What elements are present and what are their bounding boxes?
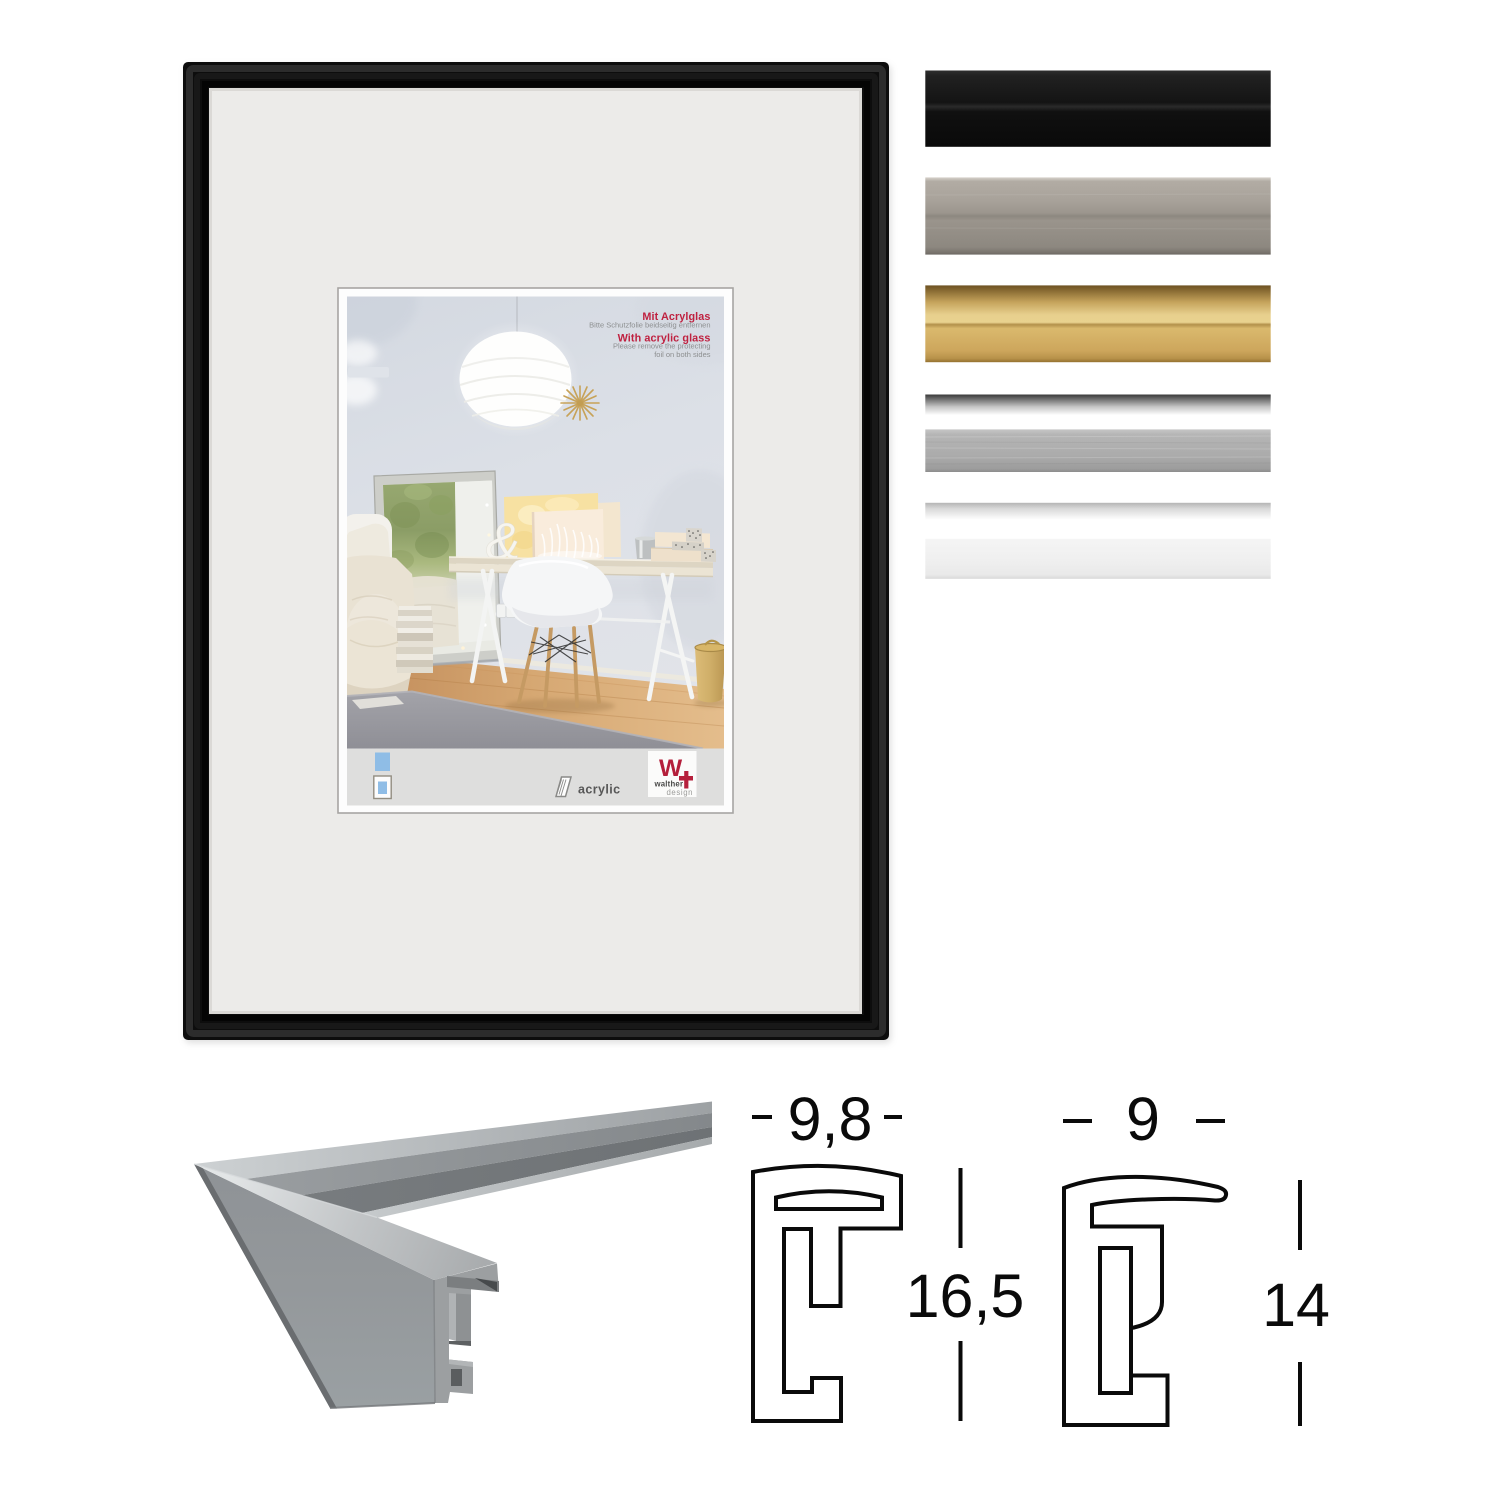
- svg-text:14: 14: [1262, 1271, 1330, 1339]
- svg-text:design: design: [667, 788, 694, 797]
- svg-text:Bitte Schutzfolie beidseitig e: Bitte Schutzfolie beidseitig entfernen: [589, 321, 710, 330]
- svg-text:9,8: 9,8: [788, 1085, 873, 1153]
- svg-text:acrylic: acrylic: [578, 783, 620, 797]
- svg-text:foil on both sides: foil on both sides: [654, 350, 711, 359]
- svg-text:9: 9: [1126, 1085, 1160, 1153]
- svg-text:16,5: 16,5: [906, 1262, 1025, 1330]
